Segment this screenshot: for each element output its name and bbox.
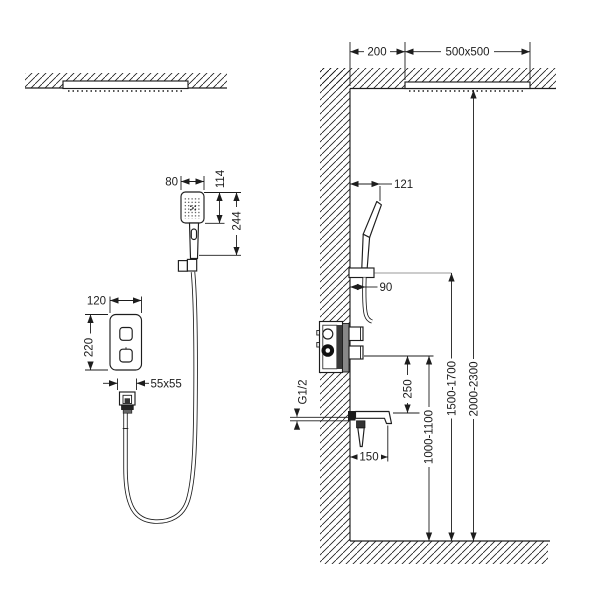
label-220: 220: [83, 338, 95, 357]
spout-hose-nut: [357, 421, 366, 428]
technical-drawing-page: 80 114 244 120 220: [0, 0, 600, 600]
floor-hatch: [320, 541, 548, 564]
dim-spout-height: 1000-1100: [422, 356, 435, 541]
hand-shower-head-side: [363, 202, 381, 238]
valve-cartridge-top: [323, 329, 333, 339]
front-ceiling-section: [25, 73, 227, 91]
hose-outlet-front: [120, 392, 136, 413]
label-244: 244: [231, 211, 243, 231]
hand-shower-handle-side: [362, 234, 370, 268]
dim-valve-to-spout: 250: [364, 356, 434, 413]
label-250: 250: [402, 379, 414, 398]
label-2000-2300: 2000-2300: [468, 362, 480, 417]
dim-spout-reach: 150: [350, 426, 388, 464]
bath-spout-side: [348, 411, 392, 447]
dim-outlet-flange: 55x55: [103, 378, 182, 390]
handle-slot: [191, 229, 196, 240]
dim-tip-offset: 121: [350, 179, 413, 201]
dim-hose-offset: 90: [350, 282, 392, 294]
dim-bracket-height: 1500-1700: [375, 273, 459, 541]
wall-hatch: [320, 68, 350, 541]
label-55x55: 55x55: [151, 378, 182, 390]
dim-panel-width: 120: [87, 296, 142, 314]
valve-mounting-plate: [343, 324, 350, 373]
concealed-valve: [317, 322, 363, 373]
hand-shower-handle: [190, 223, 199, 259]
hand-shower-side: [349, 202, 381, 322]
label-114: 114: [215, 169, 227, 188]
dim-hand-shower-heights: 114 244: [199, 169, 243, 255]
dim-ceiling-head-height: 2000-2300: [467, 90, 480, 541]
spout-hose-tail: [358, 428, 364, 447]
label-500x500: 500x500: [445, 47, 489, 59]
label-200: 200: [367, 47, 386, 59]
ceiling-shower-head-side: [405, 82, 530, 91]
spout-flange: [348, 411, 356, 421]
label-120: 120: [87, 296, 106, 308]
label-g12: G1/2: [297, 380, 309, 405]
outlet-nut: [122, 405, 134, 410]
label-1000-1100: 1000-1100: [424, 410, 436, 464]
control-panel: [110, 315, 142, 371]
label-1500-1700: 1500-1700: [446, 361, 458, 416]
panel-button-bottom: [120, 349, 132, 362]
shower-installation-diagram: 80 114 244 120 220: [0, 0, 600, 600]
hose-connector-front: [187, 259, 196, 271]
panel-button-top: [120, 328, 132, 341]
wall-bracket-front: [178, 261, 187, 272]
dim-hand-shower-width: 80: [165, 176, 204, 190]
wall-bracket-side: [349, 268, 374, 278]
label-150: 150: [359, 452, 378, 464]
hand-shower-front: [178, 192, 204, 271]
label-121: 121: [394, 179, 413, 191]
label-90: 90: [380, 282, 393, 294]
label-80: 80: [165, 177, 178, 189]
ceiling-shower-head-front: [63, 81, 188, 89]
side-wall-section: [320, 68, 556, 564]
dim-panel-height: 220: [82, 315, 108, 371]
